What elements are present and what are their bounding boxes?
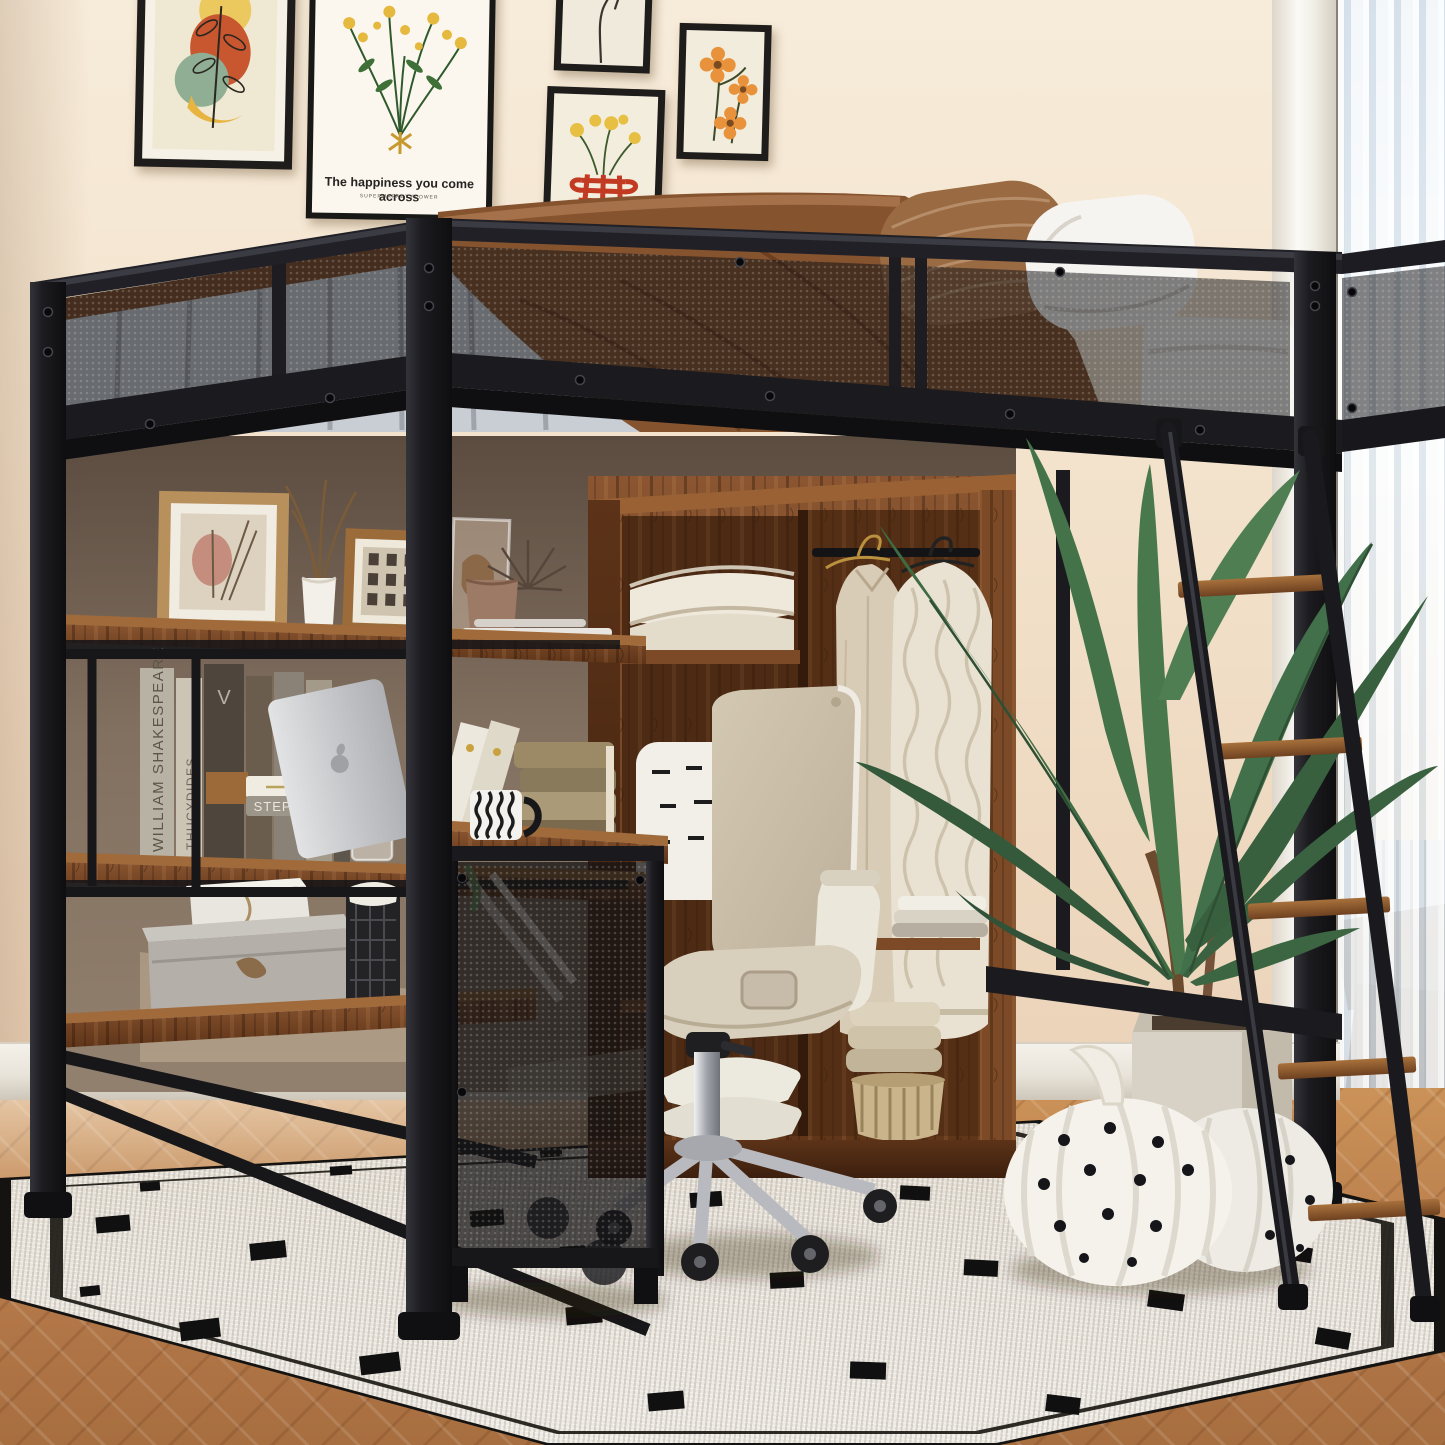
wardrobe-shelf [622, 650, 800, 664]
cabinet-mesh-door [458, 862, 646, 1250]
post-left [30, 282, 66, 1198]
chair-gas-lift [694, 1052, 720, 1148]
chair-recline-handle [742, 972, 796, 1008]
woven-basket [851, 1073, 945, 1141]
gold-frame [157, 491, 289, 633]
folded-clothes-stack [892, 896, 988, 937]
furniture-scene: WILLIAM SHAKESPEARE THUCYDIDES V [0, 0, 1445, 1445]
desk-cabinet [437, 790, 668, 1318]
post-middle [406, 218, 452, 1318]
post-right [1294, 252, 1336, 1188]
book-monogram: V [217, 687, 231, 709]
book-shakespeare-spine-text: WILLIAM SHAKESPEARE [150, 646, 167, 852]
folded-towels [846, 1002, 942, 1072]
wire-basket [346, 882, 400, 1000]
room-scene: The happiness you come across SUPERMARKE… [0, 0, 1445, 1445]
